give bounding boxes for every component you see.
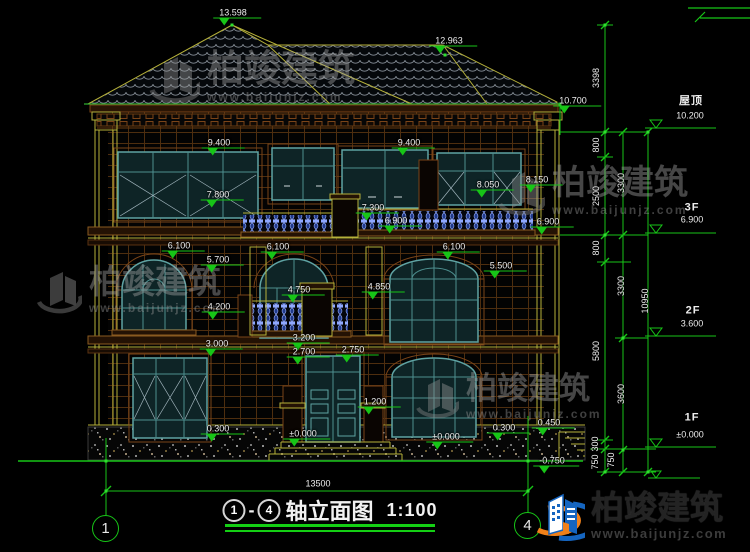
elevation-drawing [0, 0, 750, 552]
window-1f-left [129, 354, 211, 442]
title-axis-to-bubble: 4 [257, 499, 280, 522]
title-underline-2 [225, 530, 435, 532]
hip-roof [84, 25, 560, 104]
axis-bubble-1-label: 1 [101, 520, 109, 537]
axis-bubble-1: 1 [92, 515, 119, 542]
entry-door [302, 352, 364, 442]
brand-logo-text: 柏竣建筑 [591, 491, 727, 524]
cad-elevation-canvas: 柏竣建筑 www.baijunjz.com 柏竣建筑 www.baijunjz.… [0, 0, 750, 552]
drawing-title: 1 - 4 轴立面图 1:100 [222, 494, 437, 526]
axis-bubble-4-label: 4 [523, 517, 531, 534]
window-2f-right-arched [384, 255, 484, 345]
window-3f-center [268, 144, 338, 204]
window-1f-right-arched [386, 354, 482, 440]
window-3f-left [114, 148, 262, 222]
window-3f-right [433, 149, 525, 209]
title-underline [225, 524, 435, 527]
brand-logo-icon [533, 486, 585, 546]
brand-logo-url: www.baijunjz.com [591, 526, 727, 541]
brand-logo: 柏竣建筑 www.baijunjz.com [533, 486, 727, 546]
title-text: 轴立面图 [285, 494, 373, 526]
cornice-band [90, 105, 558, 128]
title-axis-from-bubble: 1 [222, 499, 245, 522]
title-separator: - [248, 500, 254, 521]
title-scale: 1:100 [386, 500, 437, 521]
